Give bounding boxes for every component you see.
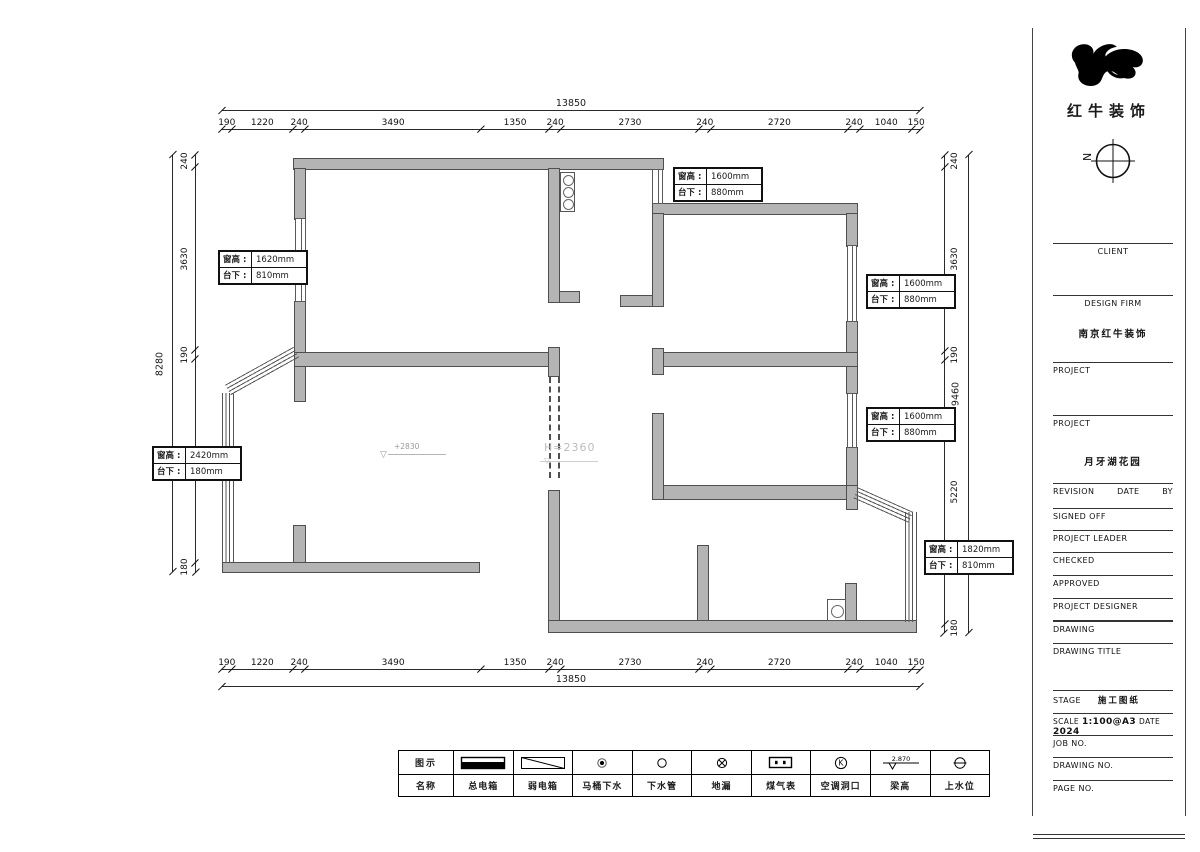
beam-height-icon: 2.870	[871, 751, 930, 774]
legend-header-column: 图示 名称	[399, 751, 453, 796]
drain-pipe-icon	[633, 751, 692, 774]
company-logo-icon	[1061, 36, 1157, 98]
page-no-row: PAGE NO.	[1053, 780, 1173, 793]
dim-segment: 2720	[711, 654, 848, 670]
dim-value: 1220	[251, 118, 274, 128]
wall	[845, 583, 857, 621]
svg-text:2.870: 2.870	[892, 755, 911, 763]
drain-pipe-box	[827, 599, 846, 621]
scale-value: 1:100@A3	[1082, 717, 1136, 727]
wall	[652, 348, 664, 375]
dim-value: 2720	[768, 118, 791, 128]
legend-item: 地漏	[691, 751, 751, 796]
dim-segment: 1350	[481, 654, 549, 670]
dim-segment: 190	[222, 114, 232, 130]
legend-item-label: 弱电箱	[514, 774, 573, 795]
dim-segment: 150	[912, 654, 920, 670]
window	[847, 245, 857, 322]
wall	[294, 168, 306, 220]
job-no-row: JOB NO.	[1053, 735, 1173, 748]
design-firm-row: DESIGN FIRM 南京红牛装饰	[1053, 295, 1173, 340]
window-label: 窗高1600mm 台下880mm	[673, 167, 763, 202]
legend-item: 马桶下水	[572, 751, 632, 796]
dim-value: 1350	[504, 118, 527, 128]
water-supply-icon	[931, 751, 990, 774]
dim-value: 1350	[504, 658, 527, 668]
dim-segment: 240	[699, 114, 711, 130]
ac-hole-icon: K	[811, 751, 870, 774]
level-triangle-icon: ▽	[380, 451, 387, 460]
dim-tick	[191, 151, 199, 159]
project-designer-row: PROJECT DESIGNER	[1053, 598, 1173, 611]
client-row: CLIENT	[1053, 243, 1173, 256]
level-marker-living: +2830 ▽	[380, 442, 450, 464]
wall	[294, 352, 560, 367]
bay-window-right	[905, 512, 917, 622]
legend-item-label: 马桶下水	[573, 774, 632, 795]
drawing-title-row: DRAWING TITLE	[1053, 643, 1173, 656]
legend-item: 总电箱	[453, 751, 513, 796]
window-label: 窗高1600mm 台下880mm	[866, 407, 956, 442]
wall	[293, 158, 664, 170]
wall	[294, 366, 306, 402]
dimension-chain-bottom: 1901220240349013502402730240272024010401…	[222, 654, 920, 670]
dim-segment: 3630	[180, 167, 196, 350]
project-leader-row: PROJECT LEADER	[1053, 530, 1173, 543]
legend-item: 下水管	[632, 751, 692, 796]
dimension-chain-top: 1901220240349013502402730240272024010401…	[222, 114, 920, 130]
project-row: PROJECT	[1053, 362, 1173, 375]
wall	[652, 413, 664, 500]
window-label: 窗高1620mm 台下810mm	[218, 250, 308, 285]
project-name-row: PROJECT 月牙湖花园	[1053, 415, 1173, 468]
dim-segment: 240	[848, 654, 860, 670]
revision-row: REVISION DATE BY	[1053, 483, 1173, 496]
wall	[652, 213, 664, 307]
legend-item: 煤气表	[751, 751, 811, 796]
dim-tick	[941, 163, 949, 171]
wall	[222, 562, 480, 573]
wall	[559, 291, 580, 303]
floor-drain-icon	[692, 751, 751, 774]
level-value: +2830	[394, 442, 419, 451]
wall	[294, 301, 306, 354]
north-label: N	[1081, 153, 1094, 161]
dim-segment: 1220	[232, 654, 293, 670]
dim-segment: 2730	[561, 114, 699, 130]
approved-row: APPROVED	[1053, 575, 1173, 588]
legend-item-label: 空调洞口	[811, 774, 870, 795]
beam-opening-value: H=2360	[544, 441, 595, 454]
company-name: 红牛装饰	[1033, 100, 1185, 121]
dim-segment: 240	[180, 155, 196, 167]
dim-value: 3630	[180, 247, 190, 270]
dim-value: 2730	[619, 658, 642, 668]
dim-segment: 1350	[481, 114, 549, 130]
level-triangle-icon: ▽	[544, 457, 550, 465]
checked-row: CHECKED	[1053, 552, 1173, 565]
signed-off-row: SIGNED OFF	[1053, 508, 1173, 521]
dim-segment: 3630	[944, 167, 960, 350]
dim-segment: 240	[293, 654, 305, 670]
legend-table: 图示 名称 总电箱弱电箱马桶下水下水管地漏煤气表K空调洞口2.870梁高上水位	[398, 750, 990, 797]
drawing-row: DRAWING	[1053, 620, 1173, 634]
wall	[548, 168, 560, 303]
title-block: 红牛装饰 N CLIENT DESIGN FIRM 南京红牛装饰 PROJECT…	[1032, 28, 1186, 816]
dim-segment: 240	[549, 114, 561, 130]
dim-tick	[941, 151, 949, 159]
kitchen-appliance	[560, 172, 575, 212]
window	[847, 393, 857, 448]
gas-meter-icon	[752, 751, 811, 774]
dim-segment: 240	[848, 114, 860, 130]
dim-segment: 240	[549, 654, 561, 670]
dim-segment: 240	[293, 114, 305, 130]
legend-item-label: 地漏	[692, 774, 751, 795]
dim-segment: 2730	[561, 654, 699, 670]
title-block-bottom-line	[1033, 834, 1185, 835]
stage-value: 施工图纸	[1098, 696, 1140, 706]
dim-value: 5220	[950, 481, 960, 504]
north-arrow-icon: N	[1077, 136, 1141, 188]
design-firm-value: 南京红牛装饰	[1053, 326, 1173, 340]
dim-segment: 1040	[860, 654, 912, 670]
legend-item: K空调洞口	[810, 751, 870, 796]
window-label: 窗高1820mm 台下810mm	[924, 540, 1014, 575]
dim-segment: 240	[699, 654, 711, 670]
wall	[652, 485, 858, 500]
dimension-total-top: 13850	[222, 110, 920, 111]
dim-value: 1220	[251, 658, 274, 668]
legend-item-label: 下水管	[633, 774, 692, 795]
dim-segment: 3490	[305, 114, 481, 130]
window	[652, 169, 663, 204]
dimension-chain-left: 24036301904040180	[180, 155, 196, 572]
wall	[620, 295, 653, 307]
wall	[697, 545, 709, 621]
window-label: 窗高2420mm 台下180mm	[152, 446, 242, 481]
stage-row: STAGE 施工图纸	[1053, 690, 1173, 706]
dim-segment: 2720	[711, 114, 848, 130]
project-name-value: 月牙湖花园	[1053, 454, 1173, 468]
dim-segment: 1040	[860, 114, 912, 130]
toilet-drain-icon	[573, 751, 632, 774]
main-power-box-icon	[454, 751, 513, 774]
dim-segment: 3490	[305, 654, 481, 670]
wall	[548, 490, 560, 623]
legend-item-label: 煤气表	[752, 774, 811, 795]
dim-value: 180	[180, 559, 190, 576]
legend-item: 2.870梁高	[870, 751, 930, 796]
floor-plan-sheet: +2830 ▽ H=2360 ▽ 窗高1620mm 台下810mm 窗高1600…	[0, 0, 1200, 852]
svg-text:K: K	[838, 758, 844, 767]
dim-tick	[941, 356, 949, 364]
dim-value: 1040	[875, 118, 898, 128]
weak-power-box-icon	[514, 751, 573, 774]
dim-value: 2720	[768, 658, 791, 668]
legend-item-label: 总电箱	[454, 774, 513, 795]
legend-item: 弱电箱	[513, 751, 573, 796]
dim-segment: 180	[180, 563, 196, 572]
dim-value: 2730	[619, 118, 642, 128]
wall	[652, 203, 858, 215]
legend-item: 上水位	[930, 751, 990, 796]
dimension-total-bottom: 13850	[222, 686, 920, 687]
legend-item-label: 上水位	[931, 774, 990, 795]
scale-row: SCALE 1:100@A3 DATE 2024	[1053, 713, 1173, 737]
legend-item-label: 梁高	[871, 774, 930, 795]
dim-segment: 1220	[232, 114, 293, 130]
beam-opening-marker: H=2360 ▽	[538, 441, 608, 467]
dimension-total-left: 8280	[172, 155, 173, 572]
drawing-no-row: DRAWING NO.	[1053, 757, 1173, 770]
dim-value: 3490	[382, 658, 405, 668]
wall	[652, 352, 858, 367]
legend-name-header: 名称	[399, 774, 453, 795]
window-label: 窗高1600mm 台下880mm	[866, 274, 956, 309]
wall	[293, 525, 306, 563]
wall	[846, 213, 858, 247]
dim-segment: 150	[912, 114, 920, 130]
dim-value: 3490	[382, 118, 405, 128]
wall	[548, 347, 560, 377]
bay-window-left-corner	[225, 347, 299, 395]
dim-value: 1040	[875, 658, 898, 668]
dim-segment: 190	[222, 654, 232, 670]
wall	[548, 620, 917, 633]
title-block-bottom-line	[1033, 838, 1185, 839]
dim-value: 3630	[950, 247, 960, 270]
dim-value: 180	[950, 620, 960, 637]
legend-symbol-header: 图示	[399, 751, 453, 774]
